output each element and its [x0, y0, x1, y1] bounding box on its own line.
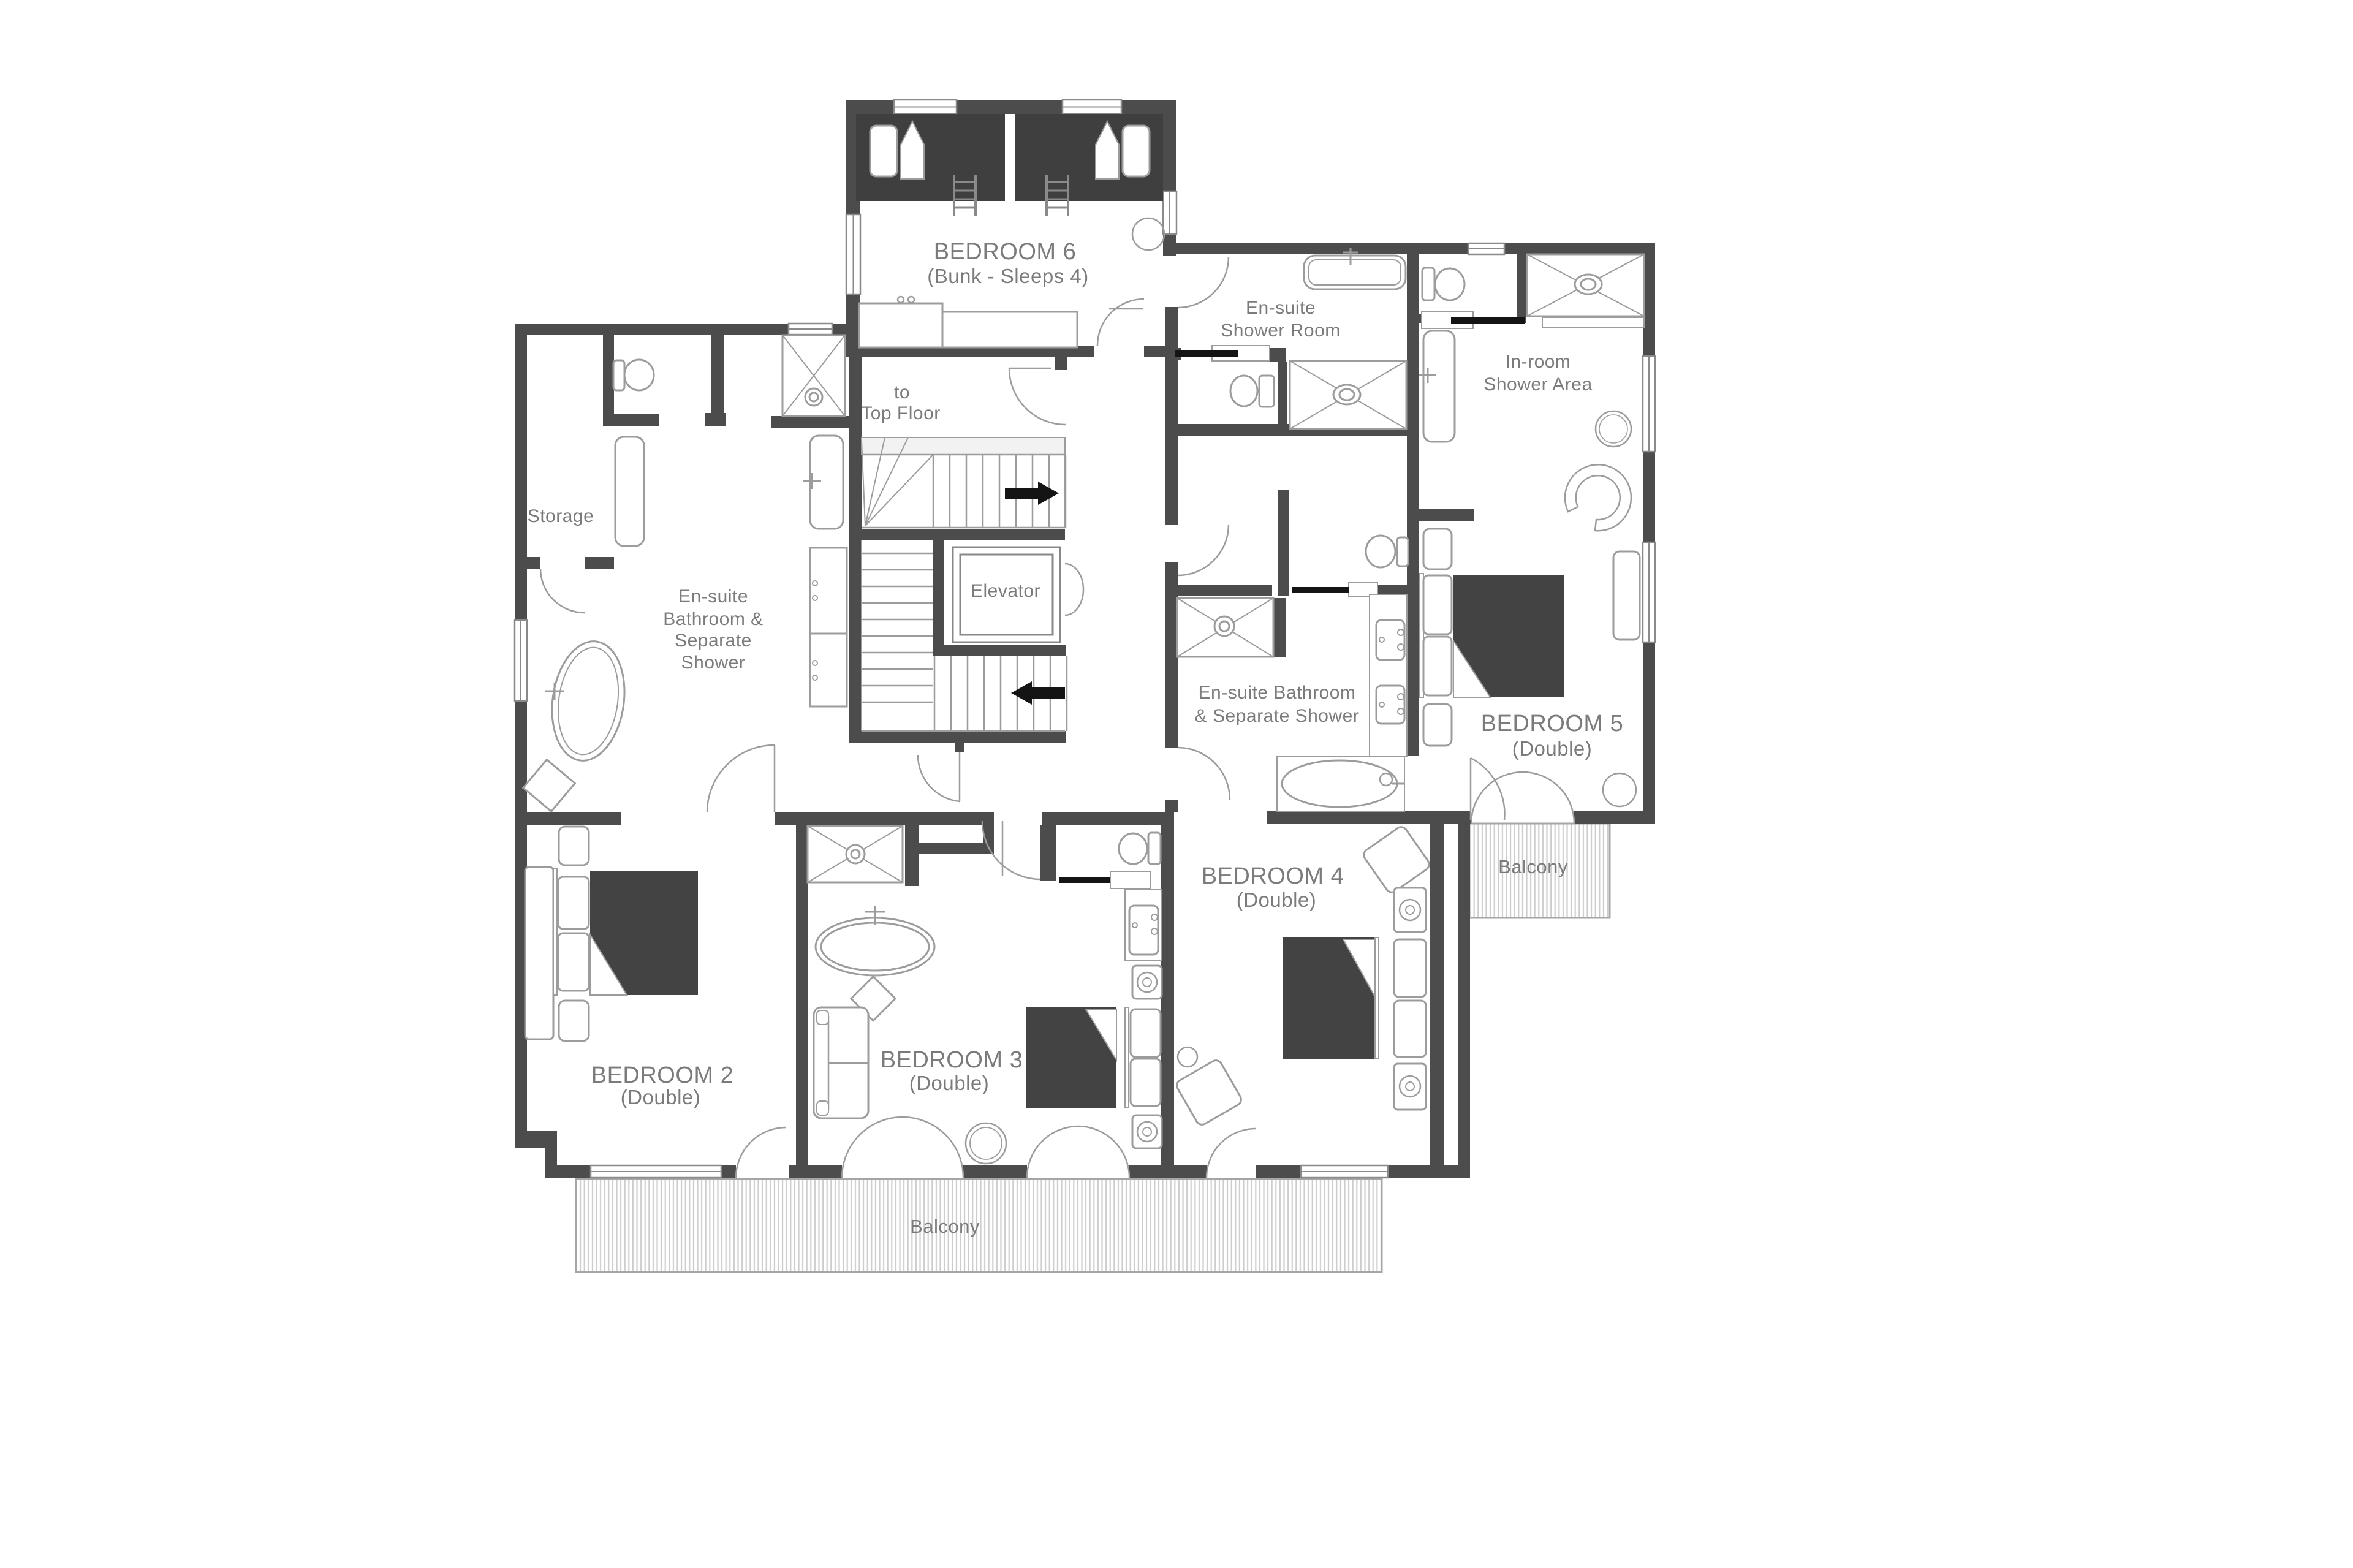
svg-text:Top Floor: Top Floor	[861, 403, 941, 423]
svg-text:En-suite Bathroom: En-suite Bathroom	[1199, 683, 1356, 703]
svg-text:En-suite: En-suite	[1246, 298, 1316, 318]
svg-text:Shower Room: Shower Room	[1221, 320, 1341, 341]
svg-text:Balcony: Balcony	[1498, 856, 1568, 877]
svg-text:Balcony: Balcony	[910, 1216, 980, 1237]
svg-text:Shower Area: Shower Area	[1483, 374, 1592, 395]
svg-text:BEDROOM 4: BEDROOM 4	[1202, 863, 1344, 889]
svg-text:(Double): (Double)	[1512, 737, 1593, 760]
svg-text:Bathroom &: Bathroom &	[663, 609, 763, 629]
svg-text:Separate: Separate	[675, 631, 752, 651]
svg-text:(Double): (Double)	[909, 1072, 990, 1094]
svg-text:BEDROOM 5: BEDROOM 5	[1481, 711, 1624, 737]
svg-text:Shower: Shower	[681, 653, 746, 673]
svg-text:BEDROOM 3: BEDROOM 3	[881, 1047, 1023, 1073]
svg-text:BEDROOM 6: BEDROOM 6	[934, 239, 1077, 265]
svg-text:(Double): (Double)	[621, 1086, 701, 1108]
svg-text:Storage: Storage	[528, 506, 594, 526]
svg-text:Elevator: Elevator	[971, 581, 1040, 601]
svg-text:(Double): (Double)	[1237, 888, 1317, 911]
svg-text:to: to	[894, 382, 910, 403]
svg-text:En-suite: En-suite	[678, 586, 748, 607]
svg-text:In-room: In-room	[1506, 352, 1571, 372]
svg-text:(Bunk - Sleeps 4): (Bunk - Sleeps 4)	[927, 265, 1088, 287]
svg-text:BEDROOM 2: BEDROOM 2	[591, 1062, 734, 1088]
svg-text:& Separate Shower: & Separate Shower	[1195, 706, 1360, 726]
